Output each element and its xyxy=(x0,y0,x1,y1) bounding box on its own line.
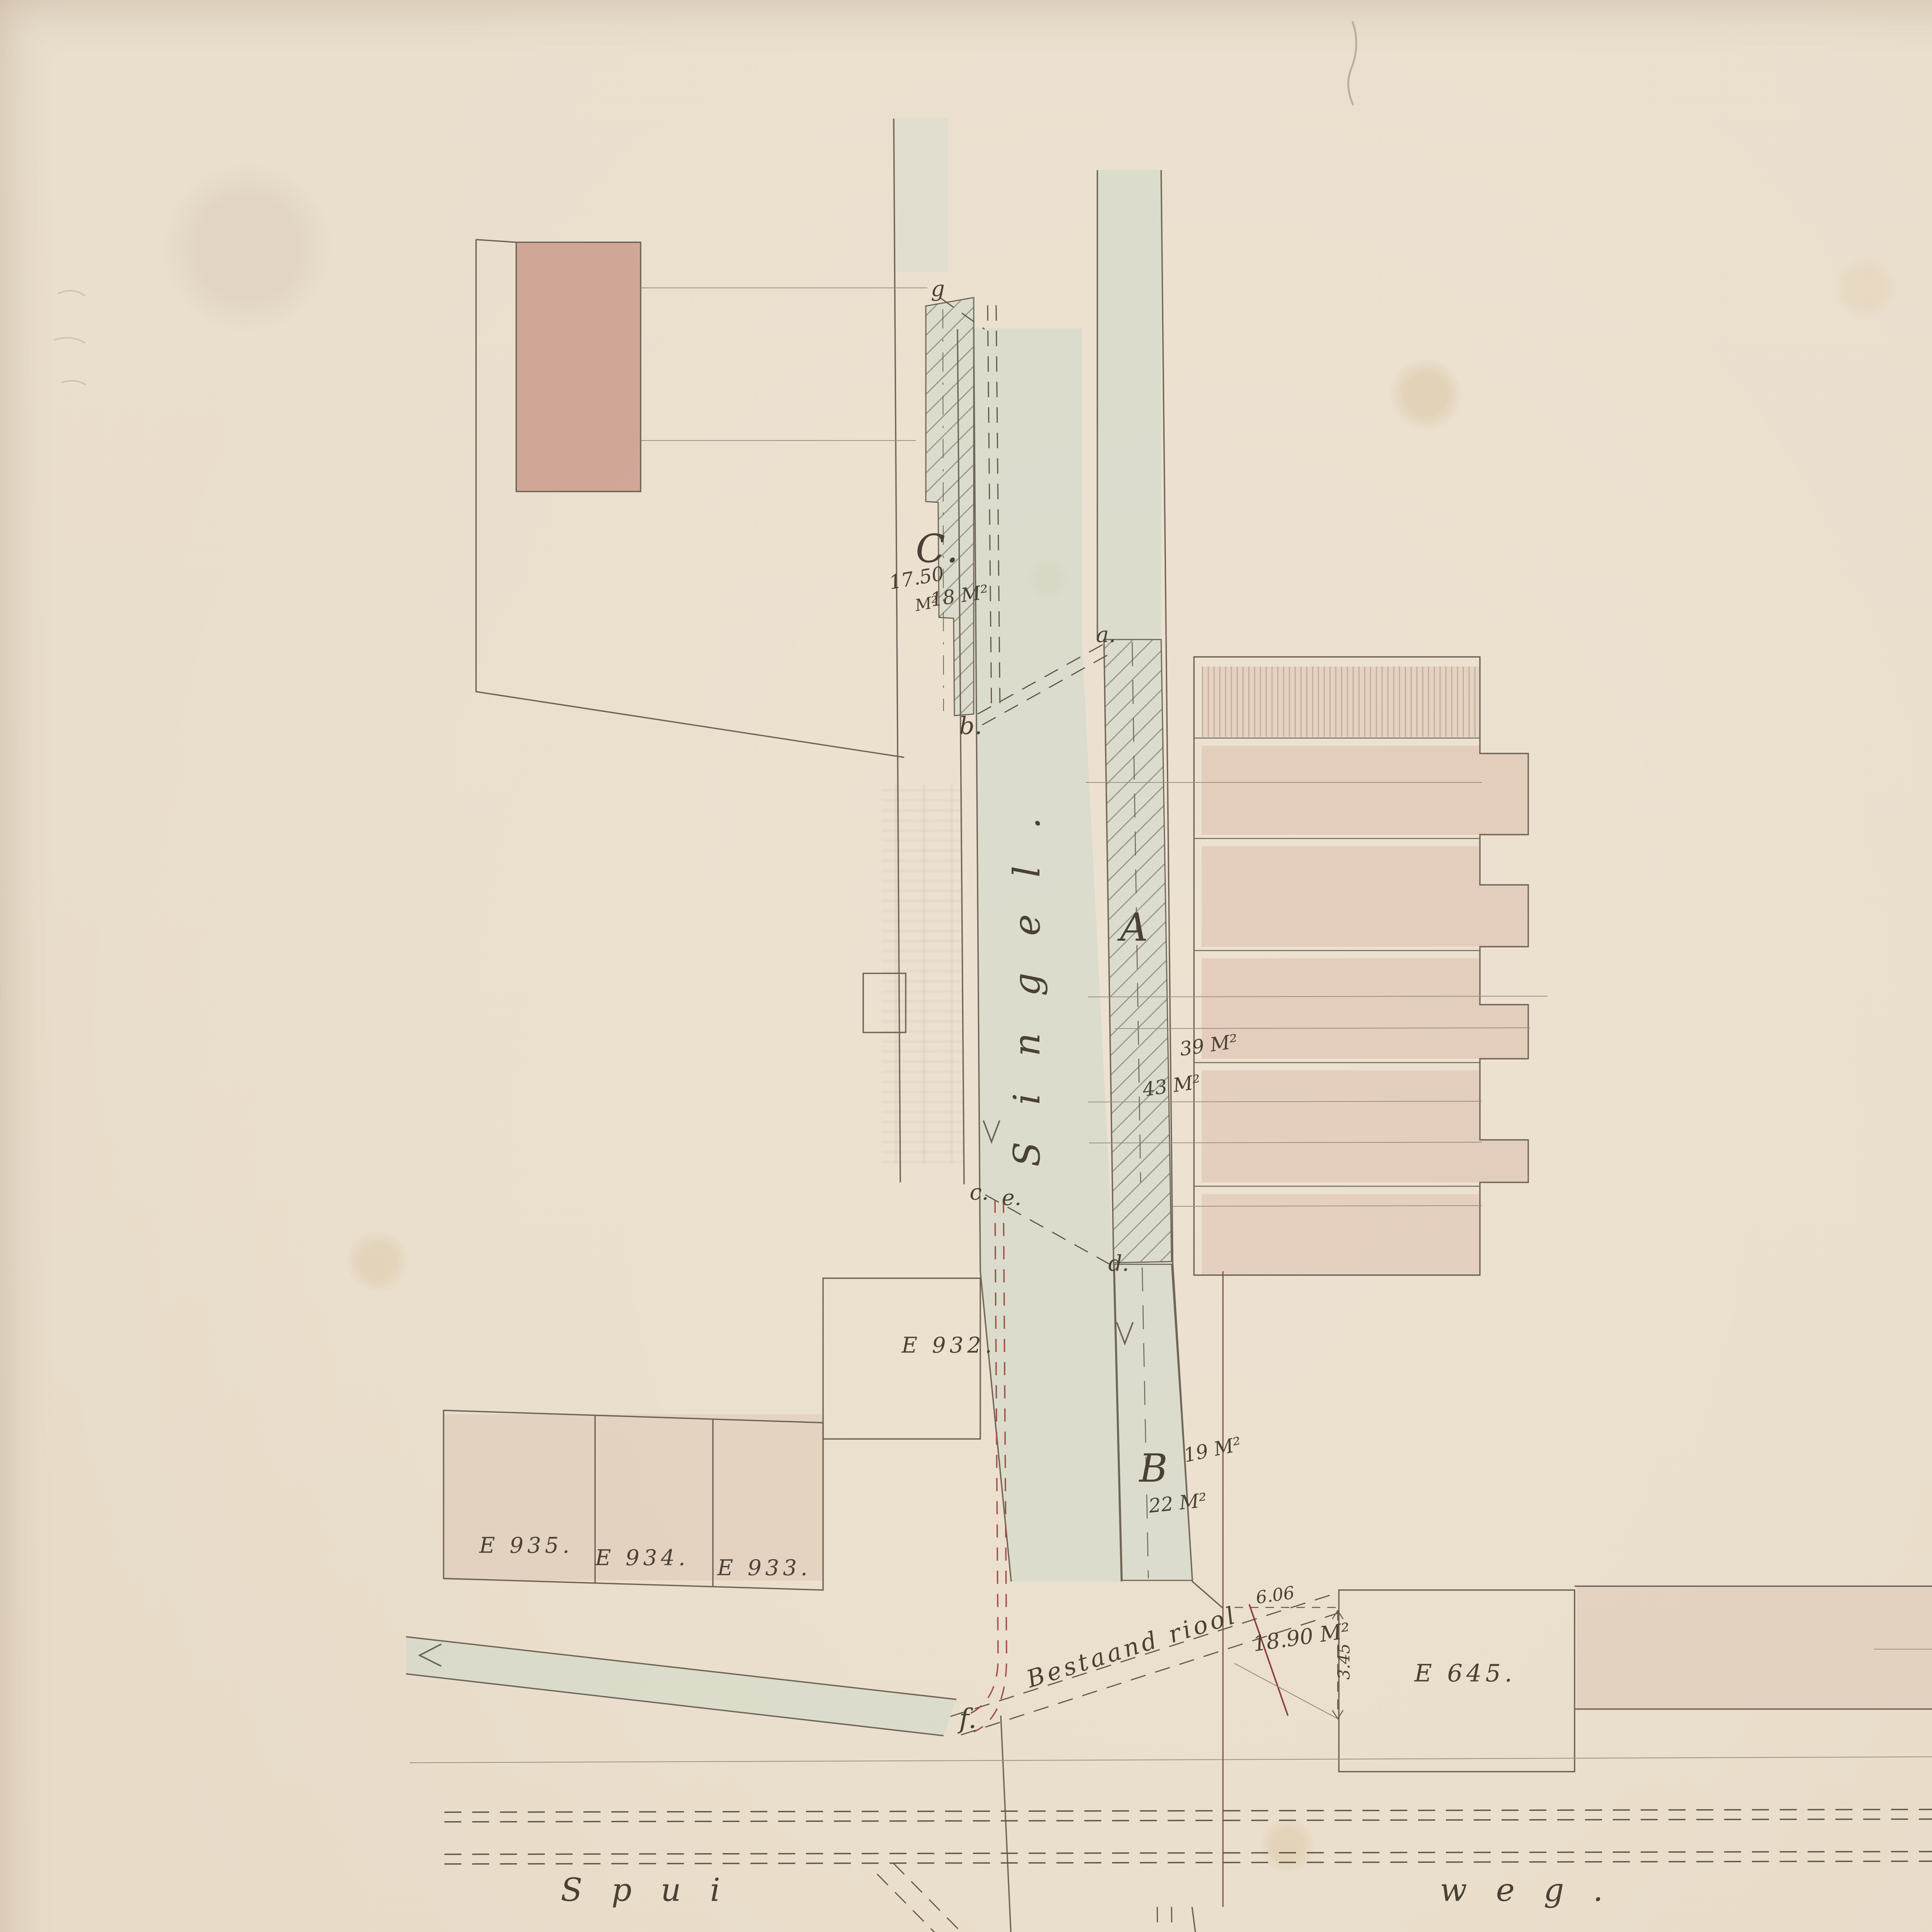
point-label-b: b. xyxy=(959,712,982,740)
section-label-a: A xyxy=(1120,905,1150,950)
parcel-e935: E 935. xyxy=(479,1533,573,1558)
point-label-g: g xyxy=(931,277,945,302)
canal-name-singel: Singel. xyxy=(1006,781,1048,1167)
buildings-pink xyxy=(444,242,1932,1709)
point-label-e: e. xyxy=(1002,1185,1022,1211)
plan-linework xyxy=(0,0,1932,1932)
drawing-sheet: Singel. Spui weg. Bestaand riool Rooijin… xyxy=(0,0,1932,1932)
street-track-lines xyxy=(444,1809,1932,1864)
point-label-d: d. xyxy=(1108,1251,1129,1276)
point-label-a: a. xyxy=(1096,622,1116,648)
strip-B xyxy=(1114,1264,1192,1580)
parcel-e645: E 645. xyxy=(1414,1659,1516,1687)
parcel-e933: E 933. xyxy=(717,1556,811,1581)
parcel-e934: E 934. xyxy=(595,1546,689,1571)
parcel-e932: E 932. xyxy=(901,1333,995,1358)
strip-A xyxy=(1104,639,1172,1263)
point-label-c: c. xyxy=(969,1180,988,1205)
street-name-spui: Spui xyxy=(561,1872,749,1909)
strip-C xyxy=(926,298,974,716)
street-name-weg: weg. xyxy=(1440,1872,1632,1909)
point-label-f: f. xyxy=(959,1703,977,1735)
section-label-b: B xyxy=(1139,1446,1170,1491)
dim-depth-345: 3.45 xyxy=(1335,1643,1354,1680)
